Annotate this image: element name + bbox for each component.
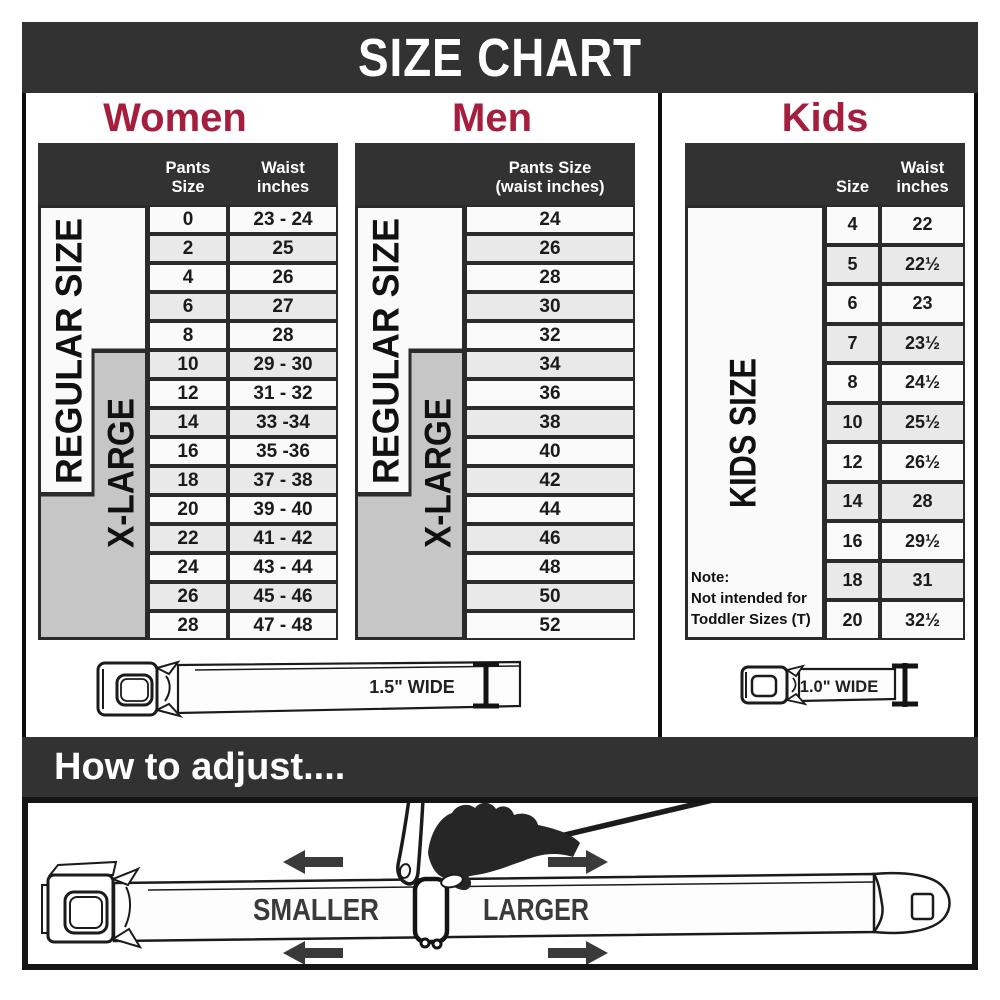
women-waist-cell: 26: [228, 263, 338, 292]
men-heading: Men: [392, 96, 592, 141]
women-table-header: Pants Size Waist inches: [38, 143, 338, 205]
kids-note-line3: Toddler Sizes (T): [691, 611, 811, 628]
kids-size-cell: 12: [825, 442, 880, 482]
women-waist-cell: 45 - 46: [228, 582, 338, 611]
kids-size-cell: 10: [825, 403, 880, 443]
women-col-pants-size: Pants Size: [148, 159, 228, 197]
kids-size-category-label: KIDS SIZE Note: Not intended for Toddler…: [685, 205, 825, 640]
kids-waist-cell: 32½: [880, 600, 965, 640]
women-heading: Women: [75, 96, 275, 141]
women-size-table: 0 23 - 24 2 25 4 26 6 27 8 28 10 29 - 30…: [148, 205, 338, 640]
kids-size-cell: 7: [825, 324, 880, 364]
kids-size-cell: 14: [825, 482, 880, 522]
women-waist-cell: 29 - 30: [228, 350, 338, 379]
women-pants-size-cell: 22: [148, 524, 228, 553]
women-pants-size-cell: 20: [148, 495, 228, 524]
adult-belt-width-label: 1.5" WIDE: [369, 677, 455, 697]
women-pants-size-cell: 28: [148, 611, 228, 640]
men-pants-size-cell: 32: [465, 321, 635, 350]
kids-size-cell: 20: [825, 600, 880, 640]
men-pants-size-cell: 34: [465, 350, 635, 379]
adjust-illustration-panel: SMALLER LARGER: [22, 797, 978, 970]
kids-waist-cell: 26½: [880, 442, 965, 482]
kids-belt-width-label: 1.0" WIDE: [800, 678, 878, 696]
kids-col-waist-line2: inches: [880, 178, 965, 197]
men-pants-size-cell: 38: [465, 408, 635, 437]
women-waist-cell: 47 - 48: [228, 611, 338, 640]
title-bar: SIZE CHART: [22, 22, 978, 93]
women-regular-size-label: REGULAR SIZE: [49, 218, 90, 484]
men-pants-size-cell: 42: [465, 466, 635, 495]
kids-size-cell: 5: [825, 245, 880, 285]
kids-size-label: KIDS SIZE: [723, 358, 764, 508]
belt-adjuster-icon: [415, 879, 447, 948]
kids-belt-width-illustration: 1.0" WIDE: [733, 654, 933, 718]
women-pants-size-cell: 8: [148, 321, 228, 350]
seatbelt-buckle-icon: [98, 662, 520, 716]
men-regular-size-label: REGULAR SIZE: [366, 218, 407, 484]
women-col-waist-line2: inches: [228, 178, 338, 197]
women-pants-size-cell: 4: [148, 263, 228, 292]
left-border: [22, 93, 26, 737]
kids-waist-cell: 22: [880, 205, 965, 245]
kids-size-cell: 16: [825, 521, 880, 561]
kids-waist-cell: 23: [880, 284, 965, 324]
women-waist-cell: 23 - 24: [228, 205, 338, 234]
men-pants-size-cell: 40: [465, 437, 635, 466]
adult-belt-width-illustration: 1.5" WIDE: [90, 654, 530, 718]
panel-divider: [658, 93, 662, 737]
page-title: SIZE CHART: [358, 27, 642, 89]
kids-size-table: 4 22 5 22½ 6 23 7 23½ 8 24½ 10 25½ 12 26…: [825, 205, 965, 640]
women-waist-cell: 39 - 40: [228, 495, 338, 524]
men-xlarge-label: X-LARGE: [418, 398, 459, 548]
women-xlarge-label: X-LARGE: [101, 398, 142, 548]
women-col-waist: Waist inches: [228, 159, 338, 197]
women-pants-size-cell: 12: [148, 379, 228, 408]
smaller-label: SMALLER: [253, 892, 379, 927]
kids-heading: Kids: [725, 96, 925, 141]
men-pants-size-cell: 44: [465, 495, 635, 524]
kids-waist-cell: 25½: [880, 403, 965, 443]
kids-size-cell: 6: [825, 284, 880, 324]
women-pants-size-cell: 24: [148, 553, 228, 582]
women-pants-size-cell: 2: [148, 234, 228, 263]
men-pants-size-cell: 28: [465, 263, 635, 292]
men-pants-size-cell: 48: [465, 553, 635, 582]
kids-col-waist-line1: Waist: [880, 159, 965, 178]
kids-col-size: Size: [825, 178, 880, 197]
men-pants-size-cell: 50: [465, 582, 635, 611]
women-waist-cell: 43 - 44: [228, 553, 338, 582]
kids-note-line2: Not intended for: [691, 590, 807, 607]
women-pants-size-cell: 18: [148, 466, 228, 495]
men-pants-size-cell: 26: [465, 234, 635, 263]
women-waist-cell: 37 - 38: [228, 466, 338, 495]
kids-table-header: Size Waist inches: [685, 143, 965, 205]
women-waist-cell: 28: [228, 321, 338, 350]
men-pants-size-cell: 30: [465, 292, 635, 321]
kids-col-waist: Waist inches: [880, 159, 965, 197]
kids-waist-cell: 29½: [880, 521, 965, 561]
women-waist-cell: 27: [228, 292, 338, 321]
women-pants-size-cell: 6: [148, 292, 228, 321]
women-pants-size-cell: 26: [148, 582, 228, 611]
men-pants-size-cell: 36: [465, 379, 635, 408]
adjust-section-header: How to adjust....: [22, 737, 978, 797]
kids-waist-cell: 23½: [880, 324, 965, 364]
women-waist-cell: 41 - 42: [228, 524, 338, 553]
women-size-category-labels: REGULAR SIZE X-LARGE: [38, 205, 148, 640]
kids-size-cell: 4: [825, 205, 880, 245]
men-pants-size-cell: 24: [465, 205, 635, 234]
belt-adjust-illustration: SMALLER LARGER: [28, 803, 972, 964]
right-border: [974, 93, 978, 737]
women-waist-cell: 35 -36: [228, 437, 338, 466]
men-table-header: Pants Size (waist inches): [355, 143, 635, 205]
men-size-category-labels: REGULAR SIZE X-LARGE: [355, 205, 465, 640]
women-pants-size-cell: 16: [148, 437, 228, 466]
larger-label: LARGER: [483, 892, 589, 927]
kids-note-line1: Note:: [691, 569, 729, 586]
men-pants-size-cell: 46: [465, 524, 635, 553]
kids-waist-cell: 31: [880, 561, 965, 601]
size-chart-infographic: SIZE CHART Women Men Kids Pants Size Wai…: [0, 0, 1000, 1000]
women-waist-cell: 31 - 32: [228, 379, 338, 408]
kids-size-cell: 8: [825, 363, 880, 403]
belt-tip-icon: [874, 873, 950, 933]
men-col-pants-size: Pants Size (waist inches): [465, 159, 635, 197]
women-pants-size-cell: 14: [148, 408, 228, 437]
men-size-table: 24 26 28 30 32 34 36 38 40 42 44 46 48 5…: [465, 205, 635, 640]
adjust-heading: How to adjust....: [54, 746, 345, 789]
kids-waist-cell: 22½: [880, 245, 965, 285]
women-pants-size-cell: 0: [148, 205, 228, 234]
women-pants-size-cell: 10: [148, 350, 228, 379]
kids-waist-cell: 28: [880, 482, 965, 522]
women-waist-cell: 33 -34: [228, 408, 338, 437]
men-pants-size-cell: 52: [465, 611, 635, 640]
men-col-line2: (waist inches): [465, 178, 635, 197]
women-waist-cell: 25: [228, 234, 338, 263]
kids-waist-cell: 24½: [880, 363, 965, 403]
kids-size-cell: 18: [825, 561, 880, 601]
men-col-line1: Pants Size: [465, 159, 635, 178]
women-col-waist-line1: Waist: [228, 159, 338, 178]
